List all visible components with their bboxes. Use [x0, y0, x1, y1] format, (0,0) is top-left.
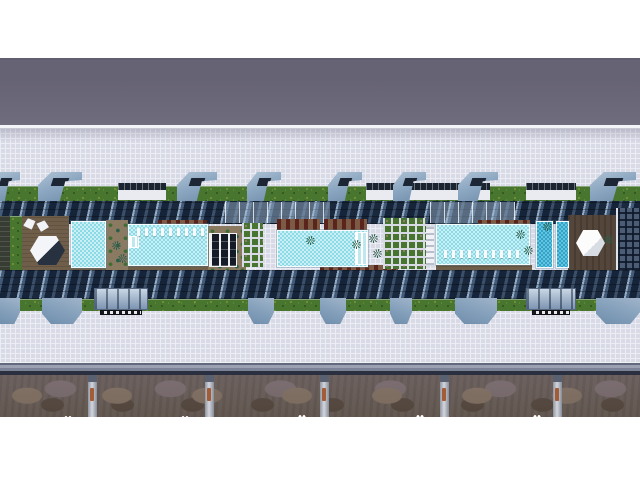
vehicle-headlight-dots [416, 415, 424, 418]
glass-pavilion-south [94, 288, 148, 310]
vehicle-headlight-dots [298, 415, 306, 418]
stall-divider-wall [553, 375, 562, 417]
roof-pavilion-north [526, 183, 576, 200]
service-road-band [0, 362, 640, 371]
palm-tree [352, 240, 361, 249]
planter-grid [242, 223, 263, 267]
in-pool-lounger [169, 228, 172, 236]
planter-grid [383, 218, 426, 269]
swimming-pool [128, 224, 208, 266]
vehicle-headlight-dots [533, 415, 541, 418]
in-pool-lounger [484, 250, 487, 258]
swimming-pool [436, 224, 530, 265]
in-pool-lounger [460, 250, 463, 258]
balcony-canopy-south [596, 298, 640, 324]
stall-divider-wall [88, 375, 97, 417]
palm-tree [112, 241, 121, 250]
deck-patch-hedge-col [10, 216, 22, 272]
in-pool-lounger [476, 250, 479, 258]
palm-tree [524, 246, 533, 255]
in-pool-lounger [161, 228, 164, 236]
stall-divider-wall [440, 375, 449, 417]
parking-stall-strip [0, 371, 640, 417]
swimming-pool [71, 221, 106, 268]
glass-pavilion-south [526, 288, 576, 310]
in-pool-lounger [444, 250, 447, 258]
in-pool-lounger [468, 250, 471, 258]
in-pool-lounger [145, 228, 148, 236]
balcony-canopy-south [320, 298, 346, 324]
aerial-render-scene [0, 0, 640, 480]
striped-walkway [532, 310, 570, 315]
in-pool-lounger [516, 250, 519, 258]
pool-steps [129, 236, 139, 248]
in-pool-lounger [193, 228, 196, 236]
framed-cabana [209, 233, 237, 267]
palm-tree [369, 234, 378, 243]
stall-divider-wall [205, 375, 214, 417]
pavilion-deck-strip [118, 191, 166, 200]
palm-tree [543, 222, 552, 231]
in-pool-lounger [185, 228, 188, 236]
in-pool-lounger [500, 250, 503, 258]
upper-tower-roof-band [0, 58, 640, 128]
deck-patch-planter-dark [0, 216, 10, 272]
palm-tree [118, 254, 127, 263]
balcony-canopy-south [455, 298, 497, 324]
balcony-canopy-south [248, 298, 274, 324]
vehicle-headlight-dots [64, 416, 72, 419]
pavilion-roof-bar [118, 183, 166, 191]
stall-divider-wall [320, 375, 329, 417]
in-pool-lounger [492, 250, 495, 258]
deck-patch-lounge [277, 219, 320, 230]
palm-tree [306, 236, 315, 245]
in-pool-lounger [508, 250, 511, 258]
in-pool-lounger [452, 250, 455, 258]
palm-tree [604, 235, 613, 244]
in-pool-lounger [177, 228, 180, 236]
in-pool-lounger [137, 228, 140, 236]
in-pool-lounger [201, 228, 204, 236]
in-pool-lounger [153, 228, 156, 236]
striped-walkway [100, 310, 142, 315]
balcony-canopy-south [42, 298, 82, 324]
pavilion-roof-bar [526, 183, 576, 191]
roof-pavilion-north [118, 183, 166, 200]
vehicle-headlight-dots [181, 416, 189, 419]
palm-tree [373, 249, 382, 258]
balcony-canopy-south [390, 298, 412, 324]
palm-tree [516, 230, 525, 239]
pavilion-deck-strip [526, 191, 576, 200]
swimming-pool [556, 221, 569, 268]
deck-patch-lounge [324, 219, 367, 230]
